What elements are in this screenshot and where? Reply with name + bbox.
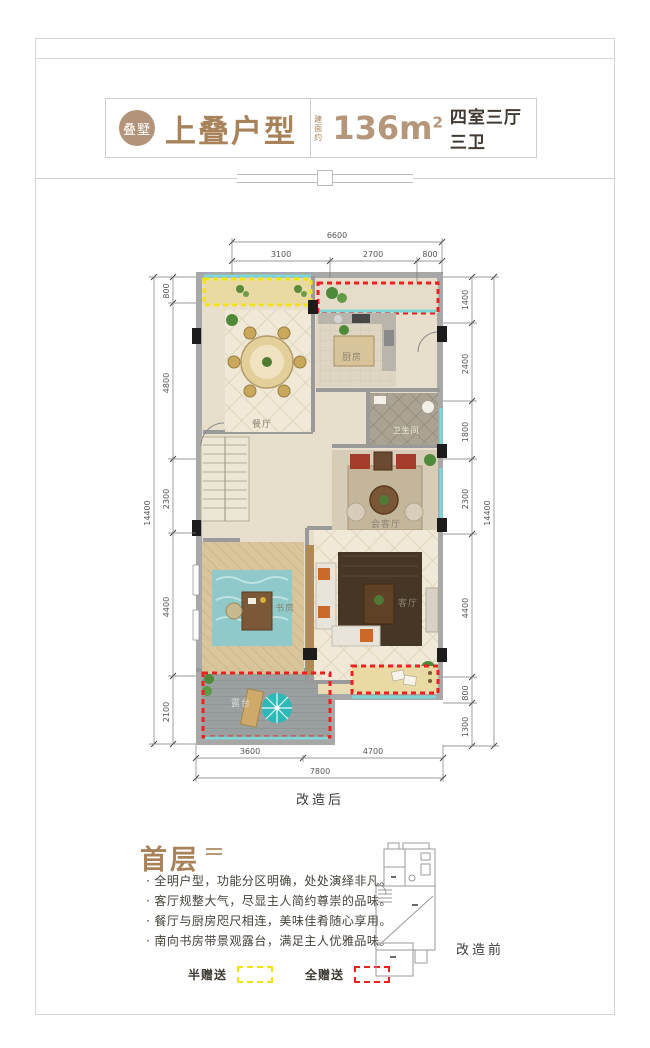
svg-text:7800: 7800 [310,767,330,776]
kitchen-label: 厨房 [342,351,362,363]
svg-text:800: 800 [461,685,470,700]
unit-type-title: 上叠户型 [165,106,297,151]
study-room: 书房 [202,542,319,675]
svg-text:4400: 4400 [461,598,470,618]
svg-text:14400: 14400 [143,500,152,525]
feature-bullet: ·全明户型，功能分区明确，处处演绎非凡。 [146,871,386,891]
bullet-dot: · [146,934,150,948]
dining-room-label: 餐厅 [252,418,272,430]
plan-after-caption: 改造后 [296,793,344,808]
svg-text:4800: 4800 [162,373,171,393]
terrace-label: 露台 [231,697,251,709]
svg-text:2300: 2300 [461,489,470,509]
title-ornament [206,848,222,858]
study-label: 书房 [275,602,295,614]
feature-text: 南向书房带景观露台，满足主人优雅品味。 [154,934,392,948]
bullet-dot: · [146,874,150,888]
legend-half-swatch [237,966,273,983]
svg-text:1800: 1800 [461,422,470,442]
floor-plan-before: 改造前 [360,838,500,988]
area-prefix-label: 建面约 [311,115,325,142]
bathroom: 卫生间 [370,393,438,445]
unit-type-header: 叠墅 上叠户型 建面约 136m2 四室三厅三卫 [105,98,537,158]
svg-text:6600: 6600 [327,231,347,240]
dimensions-left: 14400 800 4800 2300 4400 2100 [143,274,196,747]
legend-half-label: 半赠送 [188,966,227,983]
feature-text: 客厅规整大气，尽显主人简约尊崇的品味。 [154,894,392,908]
svg-text:800: 800 [422,250,437,259]
svg-text:3100: 3100 [271,250,291,259]
svg-text:1300: 1300 [461,717,470,737]
svg-text:4700: 4700 [363,747,383,756]
staircase [201,423,249,521]
reception-label: 会客厅 [371,518,401,530]
balcony-half-gift [204,279,311,305]
svg-text:14400: 14400 [483,500,492,525]
svg-text:3600: 3600 [240,747,260,756]
mini-plan-lines [376,843,435,976]
plan-before-caption: 改造前 [456,942,500,958]
living-room: 客厅 [314,530,438,680]
divider-ornament-square [317,170,333,186]
header-right-cell: 建面约 136m2 四室三厅三卫 [311,99,536,157]
dining-room: 餐厅 [225,310,311,432]
brand-logo: 叠墅 [119,110,155,146]
svg-text:800: 800 [162,283,171,298]
svg-text:1400: 1400 [461,290,470,310]
svg-text:2400: 2400 [461,354,470,374]
rooms-count-label: 四室三厅三卫 [450,103,536,153]
mini-plan-marks [390,876,418,958]
strip-full-gift-bottom [352,666,438,693]
feature-text: 全明户型，功能分区明确，处处演绎非凡。 [154,874,392,888]
living-room-label: 客厅 [398,597,418,609]
area-number: 136m [332,109,432,147]
feature-bullet: ·客厅规整大气，尽显主人简约尊崇的品味。 [146,891,386,911]
feature-list: ·全明户型，功能分区明确，处处演绎非凡。 ·客厅规整大气，尽显主人简约尊崇的品味… [146,871,386,951]
bathroom-label: 卫生间 [393,425,420,435]
dimensions-right: 1400 2400 1800 2300 4400 800 1300 14400 [443,274,499,749]
svg-text:2300: 2300 [162,489,171,509]
svg-text:2700: 2700 [363,250,383,259]
flyer-page: 叠墅 上叠户型 建面约 136m2 四室三厅三卫 [0,0,650,1048]
svg-text:4400: 4400 [162,597,171,617]
bullet-dot: · [146,894,150,908]
frame-top-line [35,58,614,59]
feature-text: 餐厅与厨房咫尺相连，美味佳肴随心享用。 [154,914,392,928]
area-superscript: 2 [432,113,442,131]
floor-plan-after: 餐厅 厨房 卫生间 [130,205,520,820]
dimensions-bottom: 3600 4700 7800 [193,745,446,782]
feature-bullet: ·南向书房带景观露台，满足主人优雅品味。 [146,931,386,951]
balcony-full-gift-top [318,283,438,313]
bullet-dot: · [146,914,150,928]
feature-bullet: ·餐厅与厨房咫尺相连，美味佳肴随心享用。 [146,911,386,931]
legend-full-label: 全赠送 [305,966,344,983]
kitchen: 厨房 [316,313,396,387]
svg-text:2100: 2100 [162,702,171,722]
header-left-cell: 叠墅 上叠户型 [106,99,311,157]
area-value: 136m2 [332,112,443,144]
